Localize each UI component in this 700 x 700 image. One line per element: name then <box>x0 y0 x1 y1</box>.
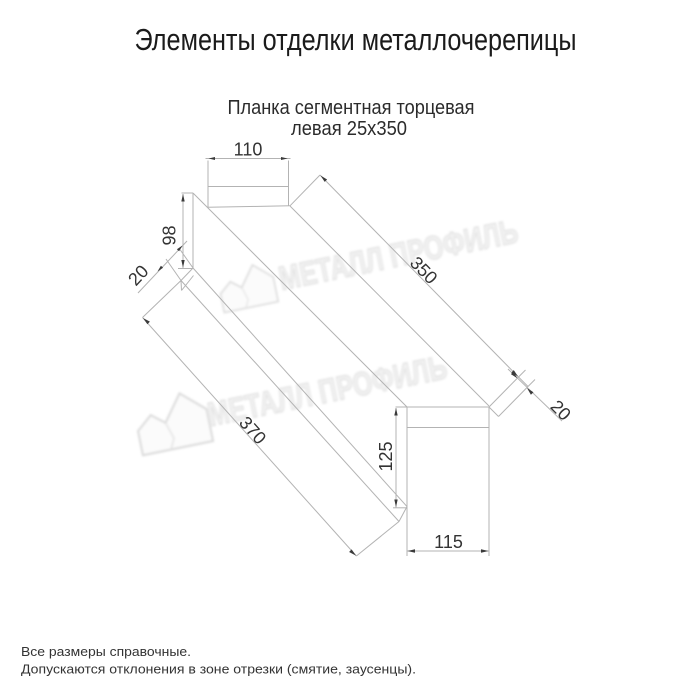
svg-text:125: 125 <box>376 441 396 471</box>
svg-text:Планка сегментная торцевая: Планка сегментная торцевая <box>228 97 475 119</box>
svg-text:Элементы отделки металлочерепи: Элементы отделки металлочерепицы <box>135 22 577 57</box>
svg-text:115: 115 <box>434 532 463 552</box>
svg-text:Все размеры справочные.: Все размеры справочные. <box>21 644 191 659</box>
svg-text:98: 98 <box>160 225 180 245</box>
svg-text:110: 110 <box>234 140 263 160</box>
svg-text:левая 25x350: левая 25x350 <box>291 118 407 140</box>
svg-text:Допускаются отклонения в зоне: Допускаются отклонения в зоне отрезки (с… <box>21 662 416 677</box>
